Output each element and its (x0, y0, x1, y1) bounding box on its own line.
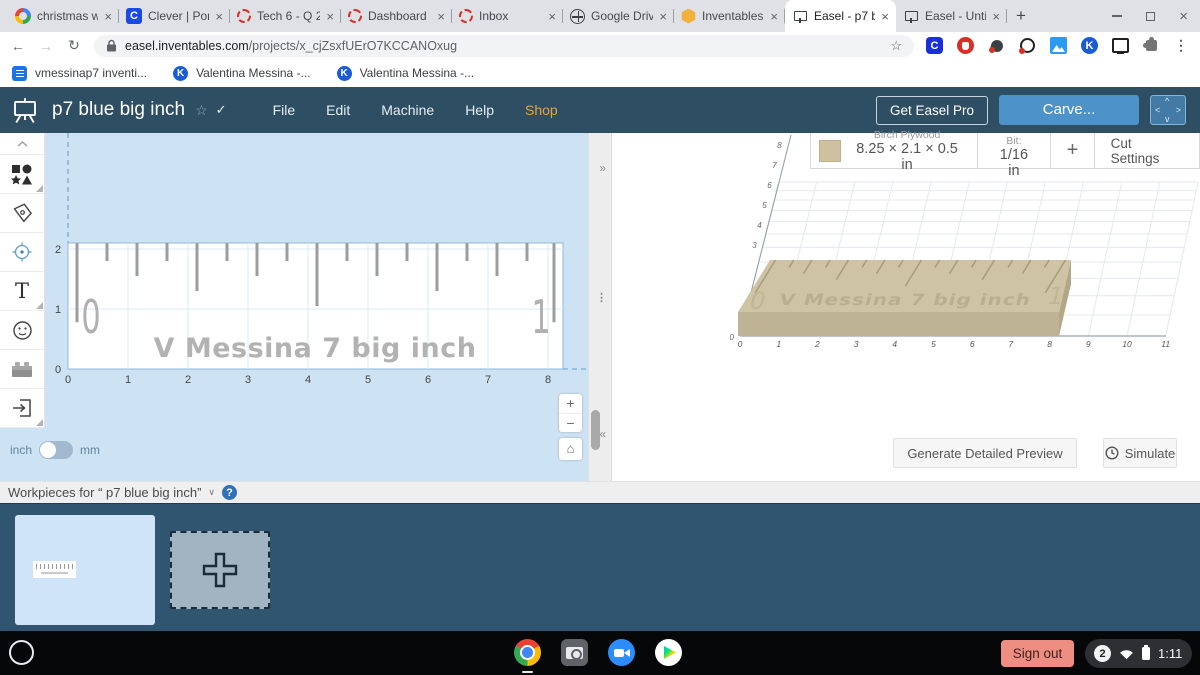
import-icon (11, 398, 33, 418)
bookmark-label: Valentina Messina -... (196, 66, 311, 80)
preview-depth-label: 6 (767, 181, 772, 190)
preview-x-axis-labels: 01234567891011 (738, 339, 1171, 349)
ruler-left-digit: 0 (81, 292, 100, 345)
play-app-icon[interactable] (655, 639, 682, 666)
splitter-handle-icon[interactable]: ⋮ (596, 291, 607, 304)
menu-edit[interactable]: Edit (326, 102, 350, 118)
browser-tab-6[interactable]: Google Driv× (563, 0, 674, 32)
x-axis-label: 7 (485, 374, 491, 386)
cast-extension-icon[interactable] (1112, 37, 1129, 54)
preview-origin-label: 0 (730, 333, 735, 342)
pen-tool[interactable] (0, 194, 44, 233)
browser-tab-2[interactable]: Clever | Port× (119, 0, 230, 32)
url-text: easel.inventables.com/projects/x_cjZsxfU… (125, 39, 457, 53)
add-bit-button[interactable]: + (1050, 133, 1093, 168)
jog-right-icon[interactable]: > (1176, 105, 1181, 115)
preview-x-label: 2 (814, 339, 820, 349)
material-selector[interactable]: Birch Plywood 8.25 × 2.1 × 0.5 in (811, 133, 977, 168)
tab-close-icon[interactable]: × (215, 9, 223, 24)
browser-menu-icon[interactable]: ⋮ (1174, 37, 1188, 54)
text-tool[interactable]: T (0, 272, 44, 311)
help-icon[interactable]: ? (222, 485, 237, 500)
inch-label: inch (10, 443, 32, 457)
chevron-up-icon (17, 141, 28, 147)
collapse-left-icon[interactable]: « (599, 427, 606, 441)
tab-title: Clever | Port (148, 9, 209, 23)
tab-close-icon[interactable]: × (437, 9, 445, 24)
text-tool-icon: T (15, 279, 29, 303)
google-favicon-icon (15, 8, 31, 24)
bookmarks-bar: vmessinap7 inventi...Valentina Messina -… (0, 59, 1200, 87)
tabs: christmas w×Clever | Port×Tech 6 - Q 2×D… (8, 0, 1007, 32)
preview-x-label: 4 (892, 339, 897, 349)
clock-time: 1:11 (1158, 646, 1182, 661)
apps-tool[interactable] (0, 350, 44, 389)
browser-tab-7[interactable]: Inventables× (674, 0, 785, 32)
panel-splitter[interactable]: » ⋮ « (588, 133, 612, 481)
workpiece-thumbnail[interactable] (15, 515, 155, 625)
jog-left-icon[interactable]: < (1155, 105, 1160, 115)
easel-favicon-icon (792, 8, 808, 24)
easel-favicon-icon (903, 8, 919, 24)
preview-x-label: 8 (1047, 339, 1052, 349)
ruler-name-text: V Messina 7 big inch (154, 333, 477, 364)
pen-icon (11, 202, 33, 224)
units-toggle[interactable] (39, 441, 73, 459)
workpieces-bar: Workpieces for “ p7 blue big inch” ∨ ? (0, 481, 1200, 503)
browser-toolbar: ← → ↻ easel.inventables.com/projects/x_c… (0, 32, 1200, 59)
header-actions: Get Easel Pro Carve... ^ < > v (876, 95, 1186, 125)
preview-x-label: 0 (738, 339, 743, 349)
clock-icon (1105, 446, 1119, 460)
vertical-scrollbar-thumb[interactable] (591, 410, 600, 450)
battery-icon (1142, 647, 1150, 660)
plus-icon (198, 548, 242, 592)
extensions-row (926, 37, 1160, 54)
shapes-icon (11, 164, 33, 185)
loading-favicon-icon (459, 9, 473, 23)
bookmark-1[interactable]: vmessinap7 inventi... (12, 66, 147, 81)
menu-shop[interactable]: Shop (525, 102, 558, 118)
forward-icon[interactable]: → (38, 38, 54, 54)
sign-out-button[interactable]: Sign out (1001, 640, 1074, 667)
bit-label: Bit: (993, 135, 1036, 147)
lego-brick-icon (10, 359, 34, 379)
saved-check-icon: ✓ (216, 102, 227, 118)
clever-extension-icon[interactable] (926, 37, 943, 54)
mm-label: mm (80, 443, 100, 457)
tab-close-icon[interactable]: × (326, 9, 334, 24)
window-close-button[interactable]: × (1179, 8, 1188, 25)
screenshot-extension-icon[interactable] (1050, 37, 1067, 54)
shelf-apps (514, 639, 682, 666)
project-title[interactable]: p7 blue big inch (52, 99, 185, 121)
globe-favicon-icon (570, 9, 585, 24)
menu-file[interactable]: File (273, 102, 296, 118)
tab-close-icon[interactable]: × (881, 9, 889, 24)
window-minimize-button[interactable] (1112, 15, 1122, 17)
preview-x-label: 5 (931, 339, 936, 349)
material-bar: Birch Plywood 8.25 × 2.1 × 0.5 in Bit: 1… (810, 133, 1200, 169)
toggle-knob (40, 442, 56, 458)
tab-title: Easel - p7 b (814, 9, 875, 23)
preview-depth-label: 4 (757, 221, 762, 230)
material-dimensions: 8.25 × 2.1 × 0.5 in (850, 141, 965, 173)
bit-value: 1/16 in (993, 147, 1036, 179)
home-view-button[interactable]: ⌂ (559, 438, 582, 460)
notification-badge: 2 (1094, 645, 1111, 662)
preview-x-label: 9 (1086, 339, 1091, 349)
easel-logo-icon[interactable] (10, 95, 40, 125)
crosshair-icon (11, 241, 33, 263)
screen: christmas w×Clever | Port×Tech 6 - Q 2×D… (0, 0, 1200, 675)
canvas-svg: 0 1 V Messina 7 big inch 012345678 012 (45, 133, 588, 481)
preview-x-label: 1 (776, 339, 781, 349)
main-area: T (0, 133, 1200, 481)
grid-vertical-line (1127, 182, 1160, 336)
bookmark-label: Valentina Messina -... (360, 66, 475, 80)
url-path: /projects/x_cjZsxfUErO7KCCANOxug (249, 39, 457, 53)
preview-panel: 0 1 V Messina 7 big inch 01234567891011 … (612, 133, 1200, 481)
window-controls: × (1112, 0, 1188, 32)
launcher-button[interactable] (9, 640, 34, 665)
browser-tab-1[interactable]: christmas w× (8, 0, 119, 32)
bit-selector[interactable]: Bit: 1/16 in (977, 133, 1051, 168)
workpieces-label: Workpieces for “ p7 blue big inch” (8, 485, 201, 500)
preview-x-label: 10 (1122, 339, 1132, 349)
new-tab-button[interactable]: + (1007, 2, 1035, 30)
material-name: Birch Plywood (850, 129, 965, 141)
preview-depth-label: 3 (752, 241, 757, 250)
browser-tab-5[interactable]: Inbox× (452, 0, 563, 32)
zoom-app-icon[interactable] (608, 639, 635, 666)
workpieces-panel (0, 503, 1200, 631)
zoom-in-button[interactable]: + (559, 394, 582, 413)
preview-x-label: 7 (1009, 339, 1014, 349)
jog-up-icon[interactable]: ^ (1165, 96, 1169, 106)
board-name-text: V Messina 7 big inch (777, 291, 1033, 309)
icon-library-tool[interactable] (0, 311, 44, 350)
kami-extension-icon[interactable] (1081, 37, 1098, 54)
simulate-label: Simulate (1125, 446, 1176, 461)
tab-title: Inventables (702, 9, 764, 23)
grid-vertical-line (1166, 182, 1198, 336)
preview-depth-label: 7 (772, 161, 777, 170)
preview-x-label: 3 (854, 339, 859, 349)
easel-header: p7 blue big inch ☆ ✓ File Edit Machine H… (0, 87, 1200, 133)
active-app-indicator (522, 671, 533, 673)
menu-machine[interactable]: Machine (381, 102, 434, 118)
smiley-icon (12, 320, 33, 341)
browser-tab-9[interactable]: Easel - Untit× (896, 0, 1007, 32)
y-axis-label: 0 (55, 364, 61, 376)
tab-title: Tech 6 - Q 2 (257, 9, 320, 23)
tab-title: Dashboard (368, 9, 431, 23)
bookmark-star-icon[interactable]: ☆ (890, 38, 902, 54)
lock-icon (106, 39, 117, 52)
browser-tab-3[interactable]: Tech 6 - Q 2× (230, 0, 341, 32)
x-axis-label: 3 (245, 374, 251, 386)
x-axis-label: 8 (545, 374, 551, 386)
jog-down-icon[interactable]: v (1165, 114, 1170, 124)
bookmark-3[interactable]: Valentina Messina -... (337, 66, 475, 81)
material-swatch (819, 140, 841, 162)
canvas-x-axis-labels: 012345678 (65, 374, 551, 386)
cut-settings-button[interactable]: Cut Settings (1094, 133, 1199, 168)
y-axis-label: 1 (55, 304, 61, 316)
design-canvas[interactable]: 0 1 V Messina 7 big inch 012345678 012 +… (45, 133, 588, 481)
stop-extension-icon[interactable] (957, 37, 974, 54)
canvas-y-axis-labels: 012 (55, 244, 61, 376)
workpiece-thumbnail-design (33, 561, 76, 578)
tab-title: Google Driv (591, 9, 653, 23)
wifi-icon (1119, 648, 1134, 660)
status-tray[interactable]: 2 1:11 (1085, 639, 1192, 668)
target-extension-icon[interactable] (1019, 37, 1036, 54)
x-axis-label: 1 (125, 374, 131, 386)
shapes-tool[interactable] (0, 155, 44, 194)
preview-board: 0 1 V Messina 7 big inch (738, 260, 1071, 336)
simulate-button[interactable]: Simulate (1103, 438, 1177, 468)
carve-button[interactable]: Carve... (999, 95, 1139, 125)
window-restore-button[interactable] (1146, 12, 1155, 21)
tab-title: christmas w (37, 9, 98, 23)
menu-bar: File Edit Machine Help Shop (273, 102, 558, 118)
bookmark-2[interactable]: Valentina Messina -... (173, 66, 311, 81)
menu-help[interactable]: Help (465, 102, 494, 118)
tab-title: Easel - Untit (925, 9, 986, 23)
chrome-app-icon[interactable] (514, 639, 541, 666)
url-domain: easel.inventables.com (125, 39, 249, 53)
preview-depth-label: 8 (777, 141, 782, 150)
camera-app-icon[interactable] (561, 639, 588, 666)
tool-palette: T (0, 133, 45, 481)
generate-preview-button[interactable]: Generate Detailed Preview (893, 438, 1077, 468)
zoom-out-button[interactable]: − (559, 413, 582, 432)
units-toggle-group: inch mm (10, 441, 100, 459)
browser-tab-8[interactable]: Easel - p7 b× (785, 0, 896, 32)
loading-favicon-icon (237, 9, 251, 23)
inventables-favicon-icon (681, 9, 696, 24)
reload-icon[interactable]: ↻ (66, 37, 82, 54)
preview-depth-label: 5 (762, 201, 767, 210)
x-axis-label: 4 (305, 374, 311, 386)
collapse-tools-button[interactable] (0, 133, 44, 155)
x-axis-label: 5 (365, 374, 371, 386)
origin-tool[interactable] (0, 233, 44, 272)
ruler-right-digit: 1 (531, 292, 550, 345)
docs-icon (12, 66, 27, 81)
favorite-star-icon[interactable]: ☆ (195, 102, 208, 119)
import-tool[interactable] (0, 389, 44, 428)
back-icon[interactable]: ← (10, 38, 26, 54)
kami-icon (173, 66, 188, 81)
zoom-controls: + − (559, 394, 582, 432)
browser-tab-strip: christmas w×Clever | Port×Tech 6 - Q 2×D… (0, 0, 1200, 32)
tab-close-icon[interactable]: × (104, 9, 112, 24)
tab-close-icon[interactable]: × (659, 9, 667, 24)
chromeos-shelf: Sign out 2 1:11 (0, 631, 1200, 675)
workpieces-collapse-icon[interactable]: ∨ (208, 487, 215, 498)
paddle-extension-icon[interactable] (988, 37, 1005, 54)
expand-right-icon[interactable]: » (599, 161, 606, 175)
x-axis-label: 6 (425, 374, 431, 386)
bookmark-label: vmessinap7 inventi... (35, 66, 147, 80)
get-easel-pro-button[interactable]: Get Easel Pro (876, 96, 988, 125)
jog-controls-button[interactable]: ^ < > v (1150, 95, 1186, 125)
puzzle-extension-icon[interactable] (1143, 37, 1160, 54)
x-axis-label: 2 (185, 374, 191, 386)
grid-vertical-line (1088, 182, 1121, 336)
tab-close-icon[interactable]: × (770, 9, 778, 24)
tab-close-icon[interactable]: × (992, 9, 1000, 24)
x-axis-label: 0 (65, 374, 71, 386)
preview-svg: 0 1 V Messina 7 big inch 01234567891011 … (612, 133, 1200, 481)
address-bar[interactable]: easel.inventables.com/projects/x_cjZsxfU… (94, 35, 914, 57)
preview-x-label: 11 (1161, 339, 1170, 349)
tab-title: Inbox (479, 9, 542, 23)
loading-favicon-icon (348, 9, 362, 23)
tab-close-icon[interactable]: × (548, 9, 556, 24)
add-workpiece-button[interactable] (170, 531, 270, 609)
browser-tab-4[interactable]: Dashboard× (341, 0, 452, 32)
preview-x-label: 6 (970, 339, 975, 349)
kami-icon (337, 66, 352, 81)
clever-favicon-icon (126, 8, 142, 24)
y-axis-label: 2 (55, 244, 61, 256)
